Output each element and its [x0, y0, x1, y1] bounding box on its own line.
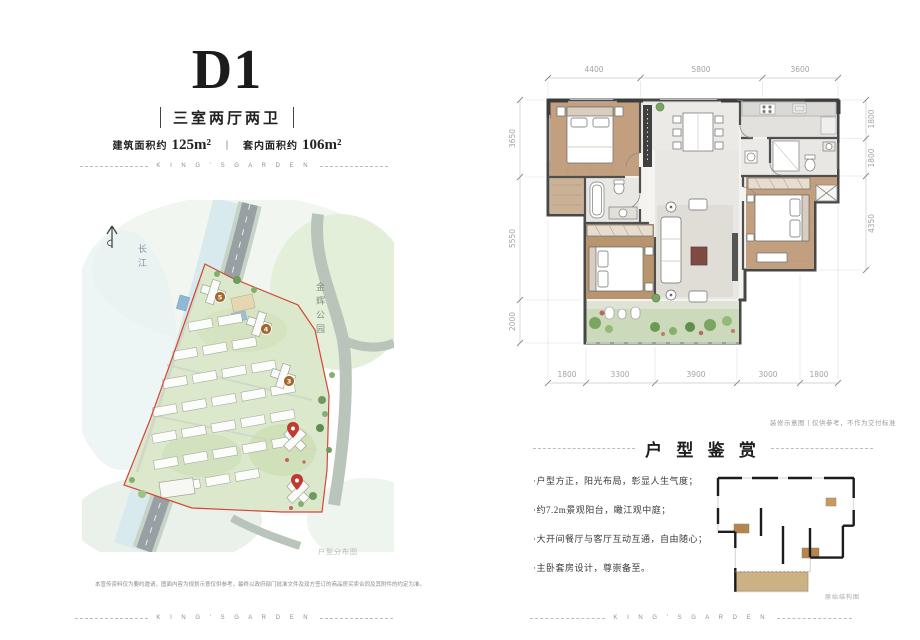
building-marker-label: 3 [287, 378, 292, 386]
dim-label: 4350 [867, 214, 876, 233]
dim-label: 4400 [584, 65, 603, 74]
dash-line [533, 448, 635, 449]
dim-top: 4400 5800 3600 [584, 65, 809, 74]
building-marker: 5 [215, 292, 226, 303]
dash-line [771, 448, 873, 449]
dim-label: 3300 [610, 370, 629, 379]
dim-label: 2000 [508, 312, 517, 331]
inner-area-value: 106m² [302, 137, 342, 153]
building-marker: 4 [261, 324, 272, 335]
river-label: 长江 [136, 244, 149, 272]
appreciation-heading: 户 型 鉴 赏 [533, 436, 873, 461]
dim-label: 3600 [790, 65, 809, 74]
appreciation-title: 户 型 鉴 赏 [645, 436, 761, 461]
map-caption: 户型分布图 [318, 547, 358, 557]
header-block: D1 三室两厅两卫 建筑面积约 125m² 丨 套内面积约 106m² [77, 42, 377, 154]
brand-text: K I N G ' S G A R D E N [156, 163, 311, 169]
brand-divider-bottom-left: K I N G ' S G A R D E N [75, 615, 393, 621]
dim-label: 1800 [867, 109, 876, 128]
dim-label: 5800 [691, 65, 710, 74]
dash-line [530, 618, 605, 619]
dash-line [75, 618, 148, 619]
build-area-value: 125m² [172, 137, 212, 153]
building-marker-label: 4 [264, 326, 269, 334]
master-bedroom-furniture [557, 107, 623, 163]
bay-window [816, 185, 837, 201]
dim-left: 3650 5550 2000 [508, 129, 517, 331]
build-area-prefix: 建筑面积约 [113, 141, 168, 152]
dim-bottom: 1800 3300 3900 3000 1800 [557, 370, 828, 379]
building-marker-label: 5 [218, 294, 223, 302]
park-label: 金辉公园 [314, 282, 327, 338]
dash-line [777, 618, 852, 619]
dim-label: 3900 [686, 370, 705, 379]
site-map: 5 4 3 [82, 200, 394, 552]
floor-plan: 4400 5800 3600 1800 3300 3900 3000 1800 … [505, 55, 890, 407]
brand-text: K I N G ' S G A R D E N [613, 615, 768, 621]
brand-divider-bottom-right: K I N G ' S G A R D E N [530, 615, 852, 621]
dash-line [80, 166, 148, 167]
brand-divider-top: K I N G ' S G A R D E N [80, 163, 388, 169]
area-info: 建筑面积约 125m² 丨 套内面积约 106m² [77, 136, 377, 154]
brand-text: K I N G ' S G A R D E N [156, 615, 311, 621]
dim-label: 3000 [758, 370, 777, 379]
dim-label: 1800 [867, 148, 876, 167]
plan-note: 装修示意图丨仅供参考，不作为交付标准 [690, 417, 896, 427]
area-divider: 丨 [222, 141, 232, 152]
dim-right: 1800 1800 4350 [867, 109, 876, 233]
page: D1 三室两厅两卫 建筑面积约 125m² 丨 套内面积约 106m² K I … [0, 0, 920, 640]
unit-layout-line: 三室两厅两卫 [77, 107, 377, 128]
building-marker: 3 [284, 376, 295, 387]
unit-layout-label: 三室两厅两卫 [160, 107, 294, 128]
dim-label: 5550 [508, 229, 517, 248]
disclaimer-text: 本宣传资料仅为要约邀请，图面内容为规划示意仅供参考，最终以政府部门批准文件及双方… [95, 580, 425, 588]
dim-label: 1800 [557, 370, 576, 379]
inner-area-prefix: 套内面积约 [243, 141, 298, 152]
dim-label: 3650 [508, 129, 517, 148]
outline-caption: 原始结构图 [770, 592, 860, 601]
dim-label: 1800 [809, 370, 828, 379]
dash-line [320, 166, 388, 167]
outline-plan [690, 468, 870, 600]
bedroom2-furniture [587, 225, 653, 291]
unit-code-title: D1 [77, 42, 377, 98]
living-furniture [652, 199, 738, 302]
dash-line [320, 618, 393, 619]
